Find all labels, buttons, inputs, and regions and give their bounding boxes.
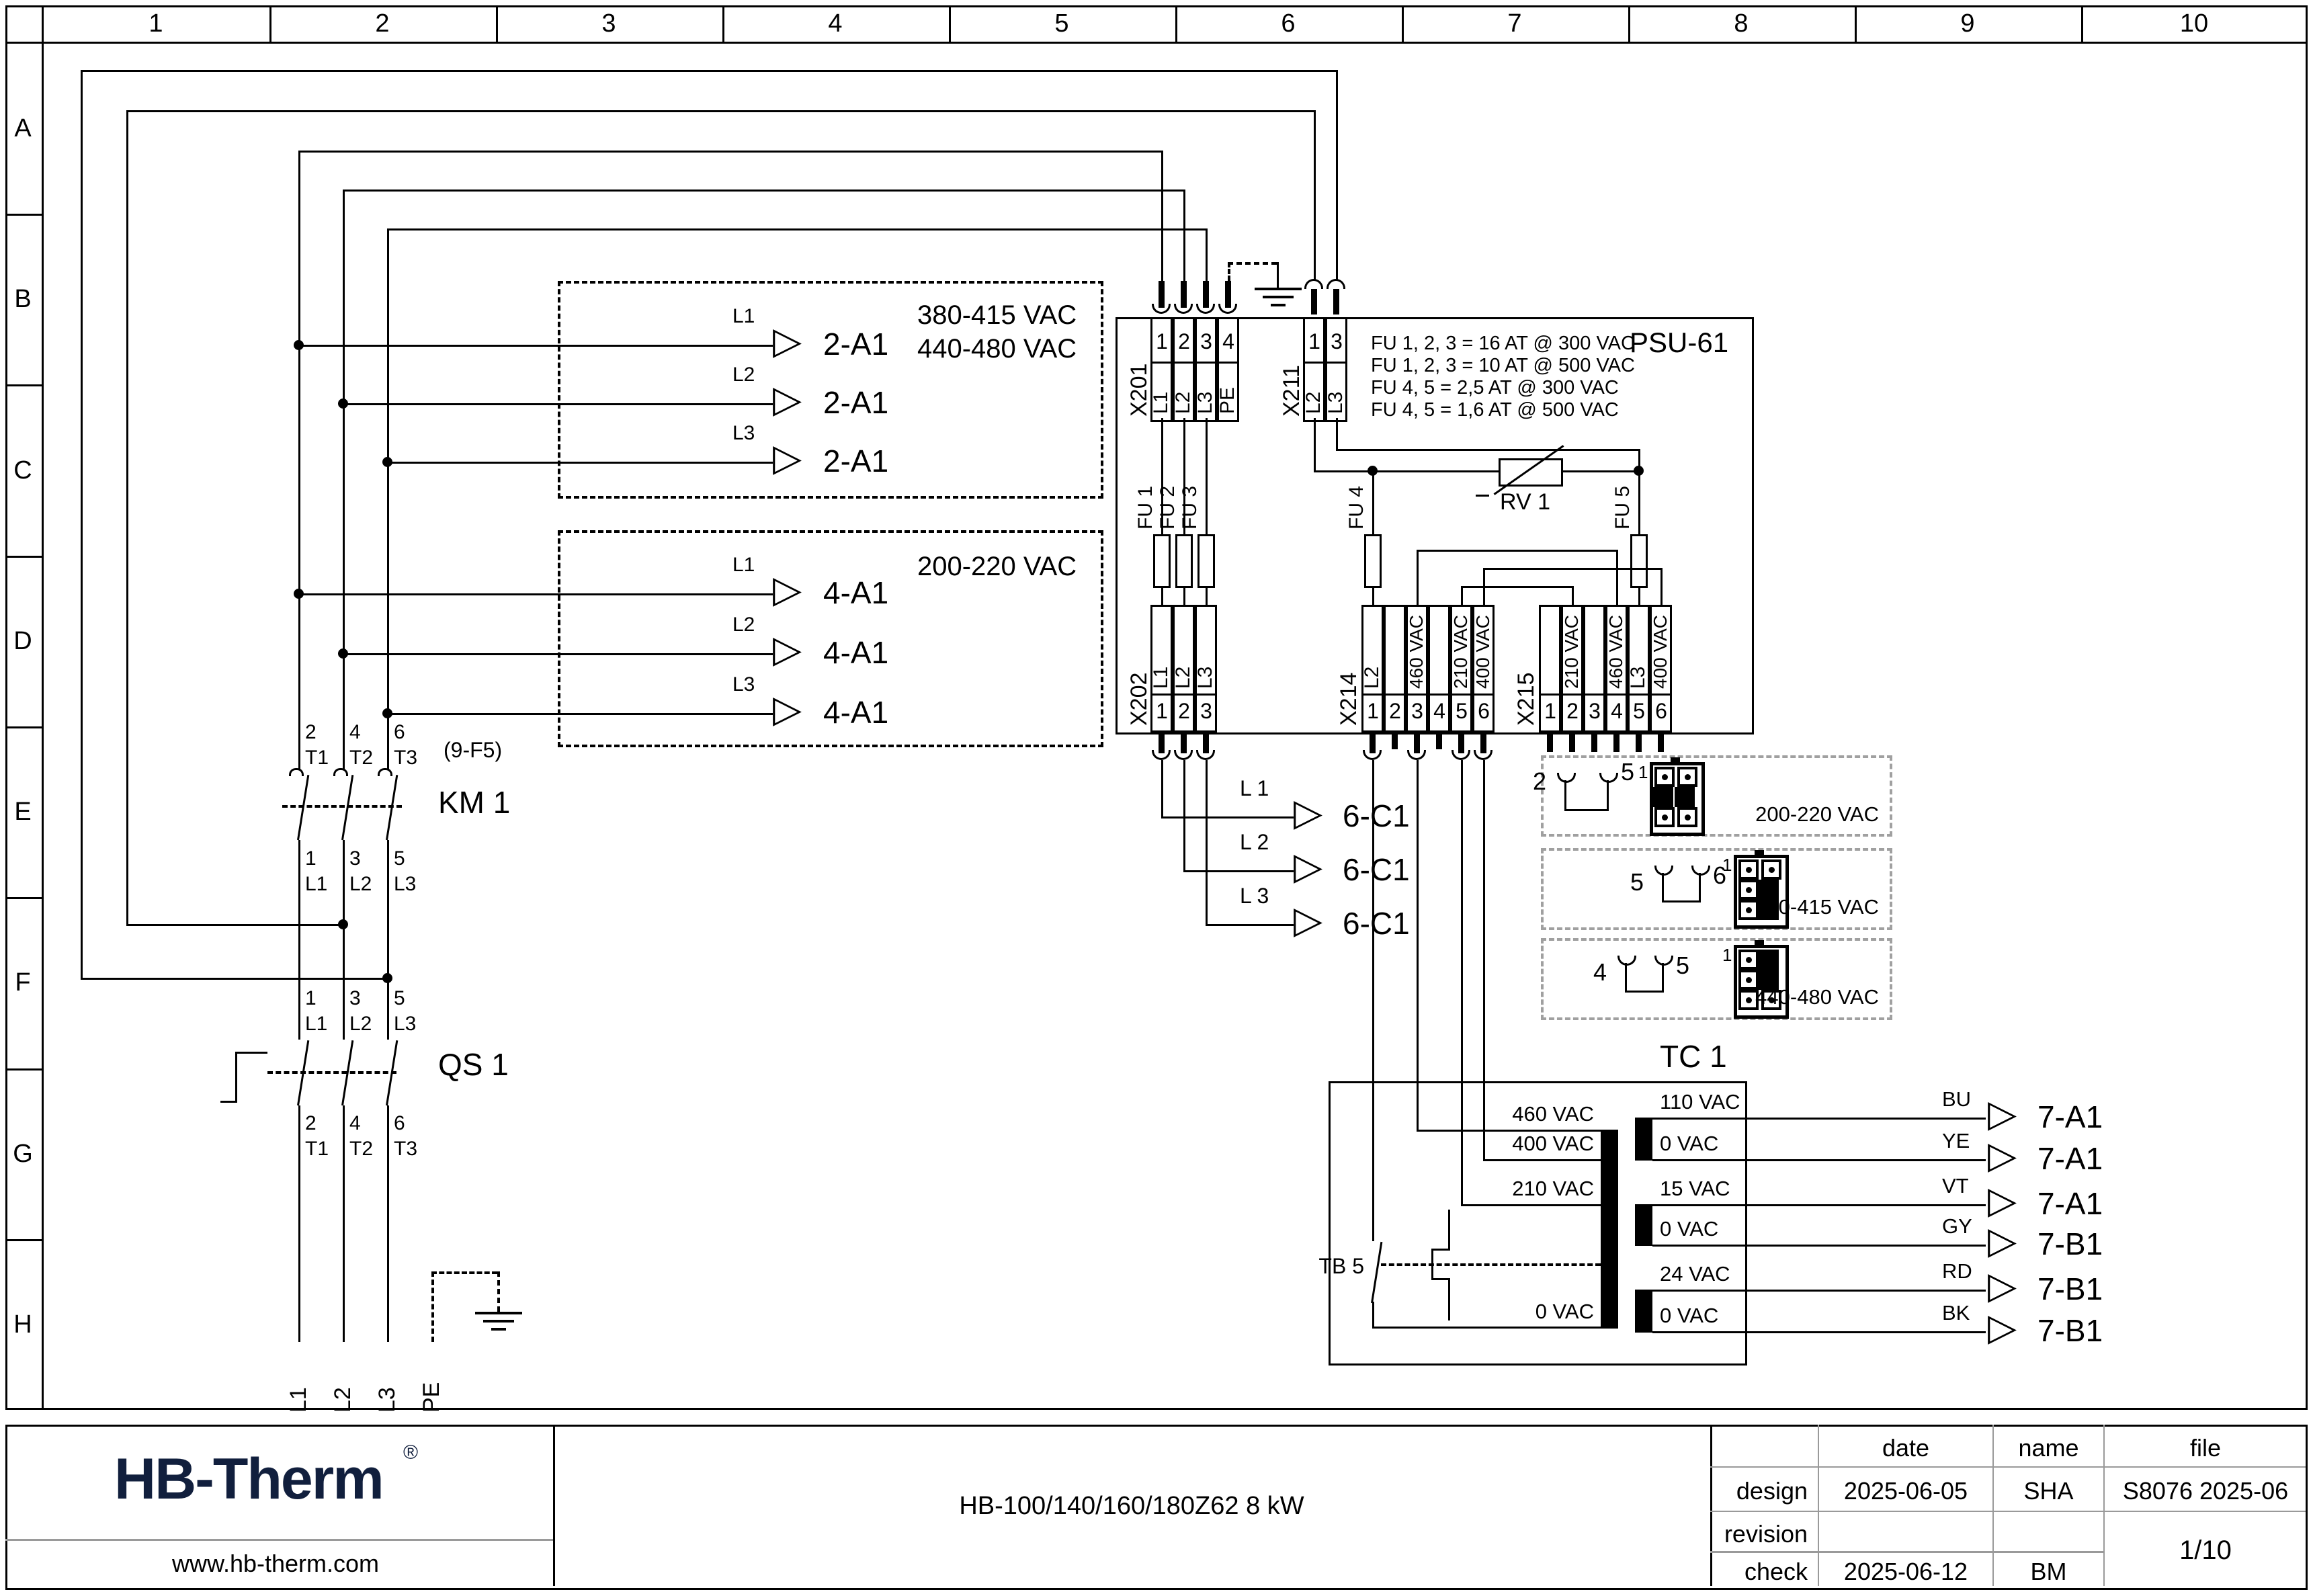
km1-top-pin: 4	[349, 722, 361, 743]
title-grid	[5, 1539, 553, 1541]
qs1-top-pin: 5	[394, 988, 405, 1009]
signal-arrow-icon: ▷	[773, 690, 802, 728]
phase-label: L 1	[1240, 778, 1269, 800]
junction-dot	[338, 398, 348, 409]
phase-label: L 3	[1240, 885, 1269, 908]
wire	[343, 190, 1185, 192]
ruler-row: G	[9, 1141, 36, 1168]
mains-label: L1	[287, 1352, 310, 1413]
pin-number: 4	[1222, 331, 1234, 353]
pin-label: 210 VAC	[1449, 608, 1472, 689]
phase-label: L2	[732, 614, 755, 636]
connector-socket	[1738, 859, 1759, 880]
ruler-col: 6	[1268, 11, 1308, 38]
fuse-note: FU 4, 5 = 1,6 AT @ 500 VAC	[1371, 400, 1619, 420]
phase-label: L 2	[1240, 831, 1269, 854]
wire	[1564, 809, 1609, 811]
pin-number: 1	[1156, 331, 1168, 353]
pin-label: L2	[1361, 615, 1384, 689]
ruler-col: 3	[589, 11, 629, 38]
wire-color: RD	[1942, 1261, 1972, 1283]
wire	[1638, 449, 1640, 534]
page-number: 1/10	[2105, 1536, 2306, 1564]
wire	[343, 653, 773, 655]
km1-top-term: T1	[305, 747, 329, 769]
primary-tap: 460 VAC	[1466, 1103, 1594, 1126]
pin-label: 210 VAC	[1560, 608, 1583, 689]
selector-voltage: 200-220 VAC	[1718, 804, 1879, 826]
connector-latch	[1755, 850, 1764, 857]
pin-number: 3	[1589, 700, 1601, 723]
wire	[1572, 586, 1574, 605]
thermal-icon	[1448, 1280, 1450, 1320]
pin-label: 400 VAC	[1649, 608, 1672, 689]
wire	[1336, 70, 1338, 280]
selector-voltage: 440-480 VAC	[1718, 986, 1879, 1009]
junction-dot	[338, 648, 348, 659]
pe-wire-dashed	[497, 1271, 500, 1312]
secondary-winding	[1635, 1204, 1652, 1246]
contact-seat	[289, 768, 304, 776]
wire	[1699, 873, 1701, 902]
wire-color: BU	[1942, 1089, 1971, 1111]
fuse-note: FU 4, 5 = 2,5 AT @ 300 VAC	[1371, 378, 1619, 398]
qs1-bot-pin: 2	[305, 1113, 317, 1134]
signal-tag: 2-A1	[823, 386, 888, 419]
pin-number: 1	[1544, 700, 1556, 723]
signal-tag: 7-A1	[2037, 1101, 2103, 1133]
terminal-name: X214	[1337, 638, 1360, 726]
pin-label: L3	[1194, 618, 1217, 689]
connector-latch	[1671, 757, 1680, 764]
wire	[1607, 780, 1609, 811]
pin-label: L1	[1150, 368, 1173, 414]
varistor-icon	[1476, 495, 1489, 497]
connector-plug	[1759, 950, 1779, 970]
signal-tag: 7-B1	[2037, 1228, 2103, 1260]
wire	[1652, 1118, 1986, 1120]
qs1-bot-term: T1	[305, 1138, 329, 1160]
wire	[1277, 262, 1279, 288]
wire	[1183, 586, 1185, 605]
signal-arrow-icon: ▷	[773, 439, 802, 476]
wire	[298, 840, 300, 1040]
pe-wire-dashed	[1228, 262, 1230, 281]
ruler-tick	[269, 5, 271, 42]
ruler-col: 1	[136, 11, 176, 38]
secondary-tap: 0 VAC	[1660, 1305, 1718, 1327]
signal-tag: 4-A1	[823, 577, 888, 609]
qs1-top-term: L2	[349, 1013, 372, 1035]
wire	[1206, 924, 1294, 926]
pin-number: 1	[1308, 331, 1320, 353]
wire-color: GY	[1942, 1216, 1972, 1238]
wire	[1652, 1159, 1986, 1161]
pin-number: 3	[1200, 331, 1212, 353]
ground-icon	[491, 1328, 506, 1331]
ruler-tick	[5, 384, 42, 386]
pe-wire-dashed	[431, 1271, 434, 1342]
jumper-pin: 5	[1630, 870, 1644, 895]
ruler-tick	[5, 1239, 42, 1241]
km1-bot-term: L1	[305, 874, 327, 895]
km1-bot-pin: 3	[349, 848, 361, 870]
wire	[1372, 470, 1374, 534]
ruler-tick	[5, 214, 42, 216]
wire	[1161, 816, 1294, 818]
km1-top-pin: 6	[394, 722, 405, 743]
phase-label: L1	[732, 306, 755, 327]
pin-number: 1	[1367, 700, 1379, 723]
ground-icon	[483, 1320, 514, 1322]
row-label: check	[1714, 1559, 1808, 1585]
ruler-separator	[42, 5, 44, 1410]
signal-arrow-icon: ▷	[1988, 1095, 2017, 1132]
wire	[1314, 418, 1316, 472]
wire	[343, 403, 773, 405]
qs1-bot-term: T3	[394, 1138, 417, 1160]
signal-tag: 2-A1	[823, 445, 888, 477]
signal-tag: 4-A1	[823, 636, 888, 669]
connector-socket	[1738, 950, 1759, 970]
plug-pin	[1569, 730, 1575, 752]
ruler-row: D	[9, 628, 36, 655]
wire	[1206, 228, 1208, 282]
mains-label: L3	[376, 1352, 398, 1413]
fuse-icon	[1153, 534, 1171, 588]
ground-icon	[1263, 296, 1294, 298]
primary-tap: 210 VAC	[1466, 1178, 1594, 1200]
pin-label: PE	[1216, 368, 1239, 414]
signal-tag: 6-C1	[1343, 853, 1410, 886]
wire	[1183, 760, 1185, 872]
wire	[1662, 963, 1664, 993]
connector-latch	[1755, 940, 1764, 947]
pin-label: L3	[1627, 615, 1650, 689]
secondary-tap: 0 VAC	[1660, 1133, 1718, 1155]
mech-link-dashed	[282, 805, 402, 808]
wire	[1161, 586, 1163, 605]
signal-tag: 7-B1	[2037, 1314, 2103, 1347]
wire	[1483, 1159, 1601, 1161]
signal-arrow-icon: ▷	[773, 571, 802, 608]
pin-number: 2	[1566, 700, 1579, 723]
wire	[298, 593, 773, 595]
mains-label: PE	[420, 1352, 443, 1413]
wire	[298, 345, 773, 347]
pin-number: 6	[1478, 700, 1490, 723]
wire	[343, 190, 345, 770]
signal-tag: 6-C1	[1343, 907, 1410, 939]
pin-label: L2	[1172, 618, 1195, 689]
qs1-bot-term: T2	[349, 1138, 373, 1160]
wire	[1161, 760, 1163, 818]
terminal-name: X211	[1280, 329, 1303, 417]
ground-icon	[1255, 288, 1302, 290]
ruler-separator	[5, 42, 2308, 44]
pin-label: L1	[1150, 618, 1173, 689]
wire	[1652, 1204, 1986, 1206]
wire	[1417, 550, 1419, 605]
pin-number: 2	[1389, 700, 1401, 723]
fuse-icon	[1364, 534, 1382, 588]
secondary-tap: 110 VAC	[1660, 1091, 1740, 1114]
plug-pin	[1436, 730, 1442, 749]
phase-label: L1	[732, 554, 755, 576]
wire	[1564, 780, 1566, 811]
jumper-pin: 4	[1593, 960, 1607, 985]
ruler-col: 4	[815, 11, 855, 38]
psu-name: PSU-61	[1630, 328, 1728, 358]
title-div	[1710, 1425, 1712, 1586]
connector-pin1: 1	[1638, 763, 1648, 782]
secondary-winding	[1635, 1118, 1652, 1161]
switch-handle	[220, 1101, 237, 1103]
wire	[387, 228, 1208, 230]
connector-pin1: 1	[1722, 856, 1732, 874]
km1-top-pin: 2	[305, 722, 317, 743]
wire	[1625, 991, 1664, 993]
qs1-top-pin: 3	[349, 988, 361, 1009]
wire	[1206, 760, 1208, 926]
tc1-name: TC 1	[1660, 1040, 1727, 1073]
signal-arrow-icon: ▷	[1988, 1308, 2017, 1346]
ruler-tick	[1628, 5, 1630, 42]
pin-number: 4	[1611, 700, 1623, 723]
wire	[387, 228, 389, 770]
signal-tag: 6-C1	[1343, 800, 1410, 832]
signal-arrow-icon: ▷	[1294, 847, 1322, 885]
switch-handle	[235, 1052, 237, 1103]
pin-number: 3	[1411, 700, 1423, 723]
logo-reg-icon: ®	[403, 1442, 418, 1464]
junction-dot	[294, 589, 304, 599]
km1-bot-pin: 1	[305, 848, 317, 870]
wire	[1417, 760, 1419, 1130]
row-label: revision	[1714, 1521, 1808, 1547]
ground-icon	[475, 1312, 522, 1314]
thermal-icon	[1448, 1210, 1450, 1249]
wire	[126, 110, 1316, 112]
phase-label: L3	[732, 674, 755, 696]
fuse-label: FU 3	[1179, 462, 1202, 530]
wire	[1652, 1331, 1986, 1333]
jumper-pin: 5	[1676, 953, 1689, 978]
wire	[1372, 1302, 1374, 1329]
ruler-col: 10	[2174, 11, 2214, 38]
wire	[126, 110, 128, 926]
wire	[81, 70, 1338, 72]
pin-number: 2	[1178, 700, 1190, 723]
wire	[1461, 586, 1463, 605]
pin-label: 400 VAC	[1472, 608, 1495, 689]
voltage-range: 440-480 VAC	[917, 335, 1077, 363]
km1-name: KM 1	[438, 786, 510, 818]
pin-number: 1	[1156, 700, 1168, 723]
km1-bot-term: L2	[349, 874, 372, 895]
varistor-label: RV 1	[1500, 491, 1550, 515]
pe-wire-dashed	[1228, 262, 1277, 265]
title-grid	[1710, 1551, 2105, 1553]
ruler-row: H	[9, 1312, 36, 1339]
signal-arrow-icon: ▷	[773, 630, 802, 668]
wire	[1206, 418, 1208, 534]
secondary-tap: 15 VAC	[1660, 1178, 1730, 1200]
terminal-div	[1303, 362, 1347, 364]
plug-pin	[1392, 730, 1398, 749]
wire	[1662, 900, 1701, 902]
wire	[387, 840, 389, 1040]
ruler-tick	[1402, 5, 1404, 42]
pin-label: L3	[1194, 368, 1217, 414]
pin-label: L2	[1302, 368, 1325, 414]
col-header: file	[2105, 1435, 2306, 1461]
connector-icon	[1650, 762, 1705, 836]
wire	[1662, 873, 1664, 902]
terminal-div	[1361, 694, 1492, 696]
fuse-icon	[1175, 534, 1193, 588]
qs1-bot-pin: 6	[394, 1113, 405, 1134]
col-header: name	[1994, 1435, 2103, 1461]
logo: HB-Therm	[114, 1449, 383, 1509]
pin-number: 3	[1200, 700, 1212, 723]
connector-pin1: 1	[1722, 946, 1732, 964]
terminal-name: X215	[1515, 638, 1538, 726]
check-date: 2025-06-12	[1819, 1559, 1992, 1585]
qs1-top-pin: 1	[305, 988, 317, 1009]
signal-tag: 4-A1	[823, 696, 888, 728]
thermal-icon	[1431, 1249, 1450, 1251]
pin-number: 6	[1655, 700, 1667, 723]
ruler-tick	[1175, 5, 1177, 42]
voltage-range: 200-220 VAC	[917, 552, 1077, 581]
fuse-icon	[1630, 534, 1648, 588]
thermal-icon	[1431, 1278, 1450, 1280]
plug-pin	[1547, 730, 1553, 752]
signal-tag: 7-A1	[2037, 1187, 2103, 1220]
selector-voltage: 380-415 VAC	[1718, 896, 1879, 919]
col-header: date	[1819, 1435, 1992, 1461]
ruler-row: E	[9, 799, 36, 826]
primary-tap: 400 VAC	[1466, 1133, 1594, 1155]
wire	[1161, 151, 1163, 282]
wire-color: YE	[1942, 1130, 1970, 1152]
connector-socket	[1677, 807, 1697, 827]
km1-top-term: T3	[394, 747, 417, 769]
row-label: design	[1714, 1478, 1808, 1504]
doc-title: HB-100/140/160/180Z62 8 kW	[553, 1493, 1710, 1520]
plug-pin	[1333, 289, 1339, 314]
wire-color: BK	[1942, 1302, 1970, 1325]
pin-label: L2	[1172, 368, 1195, 414]
secondary-tap: 24 VAC	[1660, 1263, 1730, 1286]
qs1-name: QS 1	[438, 1048, 509, 1081]
qs1-bot-pin: 4	[349, 1113, 361, 1134]
fuse-note: FU 1, 2, 3 = 16 AT @ 300 VAC	[1371, 333, 1635, 353]
fuse-note: FU 1, 2, 3 = 10 AT @ 500 VAC	[1371, 355, 1635, 376]
design-date: 2025-06-05	[1819, 1478, 1992, 1504]
signal-tag: 7-B1	[2037, 1273, 2103, 1305]
pin-label: 460 VAC	[1605, 608, 1628, 689]
km1-ref: (9-F5)	[444, 739, 502, 762]
wire-color: VT	[1942, 1175, 1969, 1198]
wire	[387, 462, 773, 464]
mech-link-dashed	[1381, 1263, 1601, 1266]
wire	[343, 1105, 345, 1342]
connector-socket	[1654, 767, 1675, 787]
breaker-label: TB 5	[1307, 1255, 1364, 1278]
junction-dot	[382, 708, 392, 718]
ruler-tick	[5, 726, 42, 728]
signal-tag: 7-A1	[2037, 1142, 2103, 1175]
fuse-label: FU 4	[1345, 462, 1368, 530]
connector-socket	[1761, 859, 1781, 880]
wire	[1336, 449, 1640, 451]
wire	[1625, 963, 1627, 993]
signal-tag: 2-A1	[823, 328, 888, 360]
ruler-tick	[496, 5, 498, 42]
ruler-tick	[5, 897, 42, 899]
ruler-row: C	[9, 458, 36, 485]
wire	[343, 840, 345, 1040]
connector-plug	[1653, 787, 1673, 807]
pin-number: 3	[1331, 331, 1343, 353]
connector-plug	[1675, 787, 1695, 807]
wire	[1638, 586, 1640, 605]
ruler-col: 5	[1042, 11, 1082, 38]
mech-link-dashed	[267, 1071, 396, 1074]
wire	[1652, 1245, 1986, 1247]
ruler-tick	[5, 1068, 42, 1070]
terminal-div	[1150, 694, 1217, 696]
wire	[1314, 110, 1316, 280]
voltage-range: 380-415 VAC	[917, 301, 1077, 329]
title-grid	[1710, 1466, 2306, 1468]
wire	[298, 151, 300, 770]
wire	[298, 1105, 300, 1342]
wire	[298, 151, 1163, 153]
wire	[387, 1105, 389, 1342]
fuse-label: FU 5	[1611, 462, 1634, 530]
connector-socket	[1654, 807, 1675, 827]
pin-number: 5	[1456, 700, 1468, 723]
km1-bot-pin: 5	[394, 848, 405, 870]
wire	[1483, 568, 1663, 570]
pin-label: L3	[1324, 368, 1347, 414]
contact-seat	[378, 768, 392, 776]
wire	[1372, 586, 1374, 605]
terminal-div	[1539, 694, 1670, 696]
signal-arrow-icon: ▷	[1988, 1267, 2017, 1304]
schematic-sheet: 1 2 3 4 5 6 7 8 9 10 A B C D E F G H L1 …	[0, 0, 2313, 1596]
wire	[387, 713, 773, 715]
ruler-tick	[5, 556, 42, 558]
signal-arrow-icon: ▷	[1294, 901, 1322, 939]
jumper-pin: 2	[1533, 769, 1546, 794]
wire	[1183, 870, 1294, 872]
check-name: BM	[1994, 1559, 2103, 1585]
plug-pin	[1636, 730, 1642, 752]
fuse-label: FU 2	[1156, 462, 1179, 530]
ruler-row: B	[9, 286, 36, 313]
ground-icon	[1271, 304, 1286, 306]
signal-arrow-icon: ▷	[773, 380, 802, 418]
terminal-name: X201	[1128, 329, 1150, 417]
ruler-col: 9	[1947, 11, 1988, 38]
wire	[1206, 586, 1208, 605]
wire	[1183, 190, 1185, 282]
design-file: S8076 2025-06	[2105, 1478, 2306, 1504]
